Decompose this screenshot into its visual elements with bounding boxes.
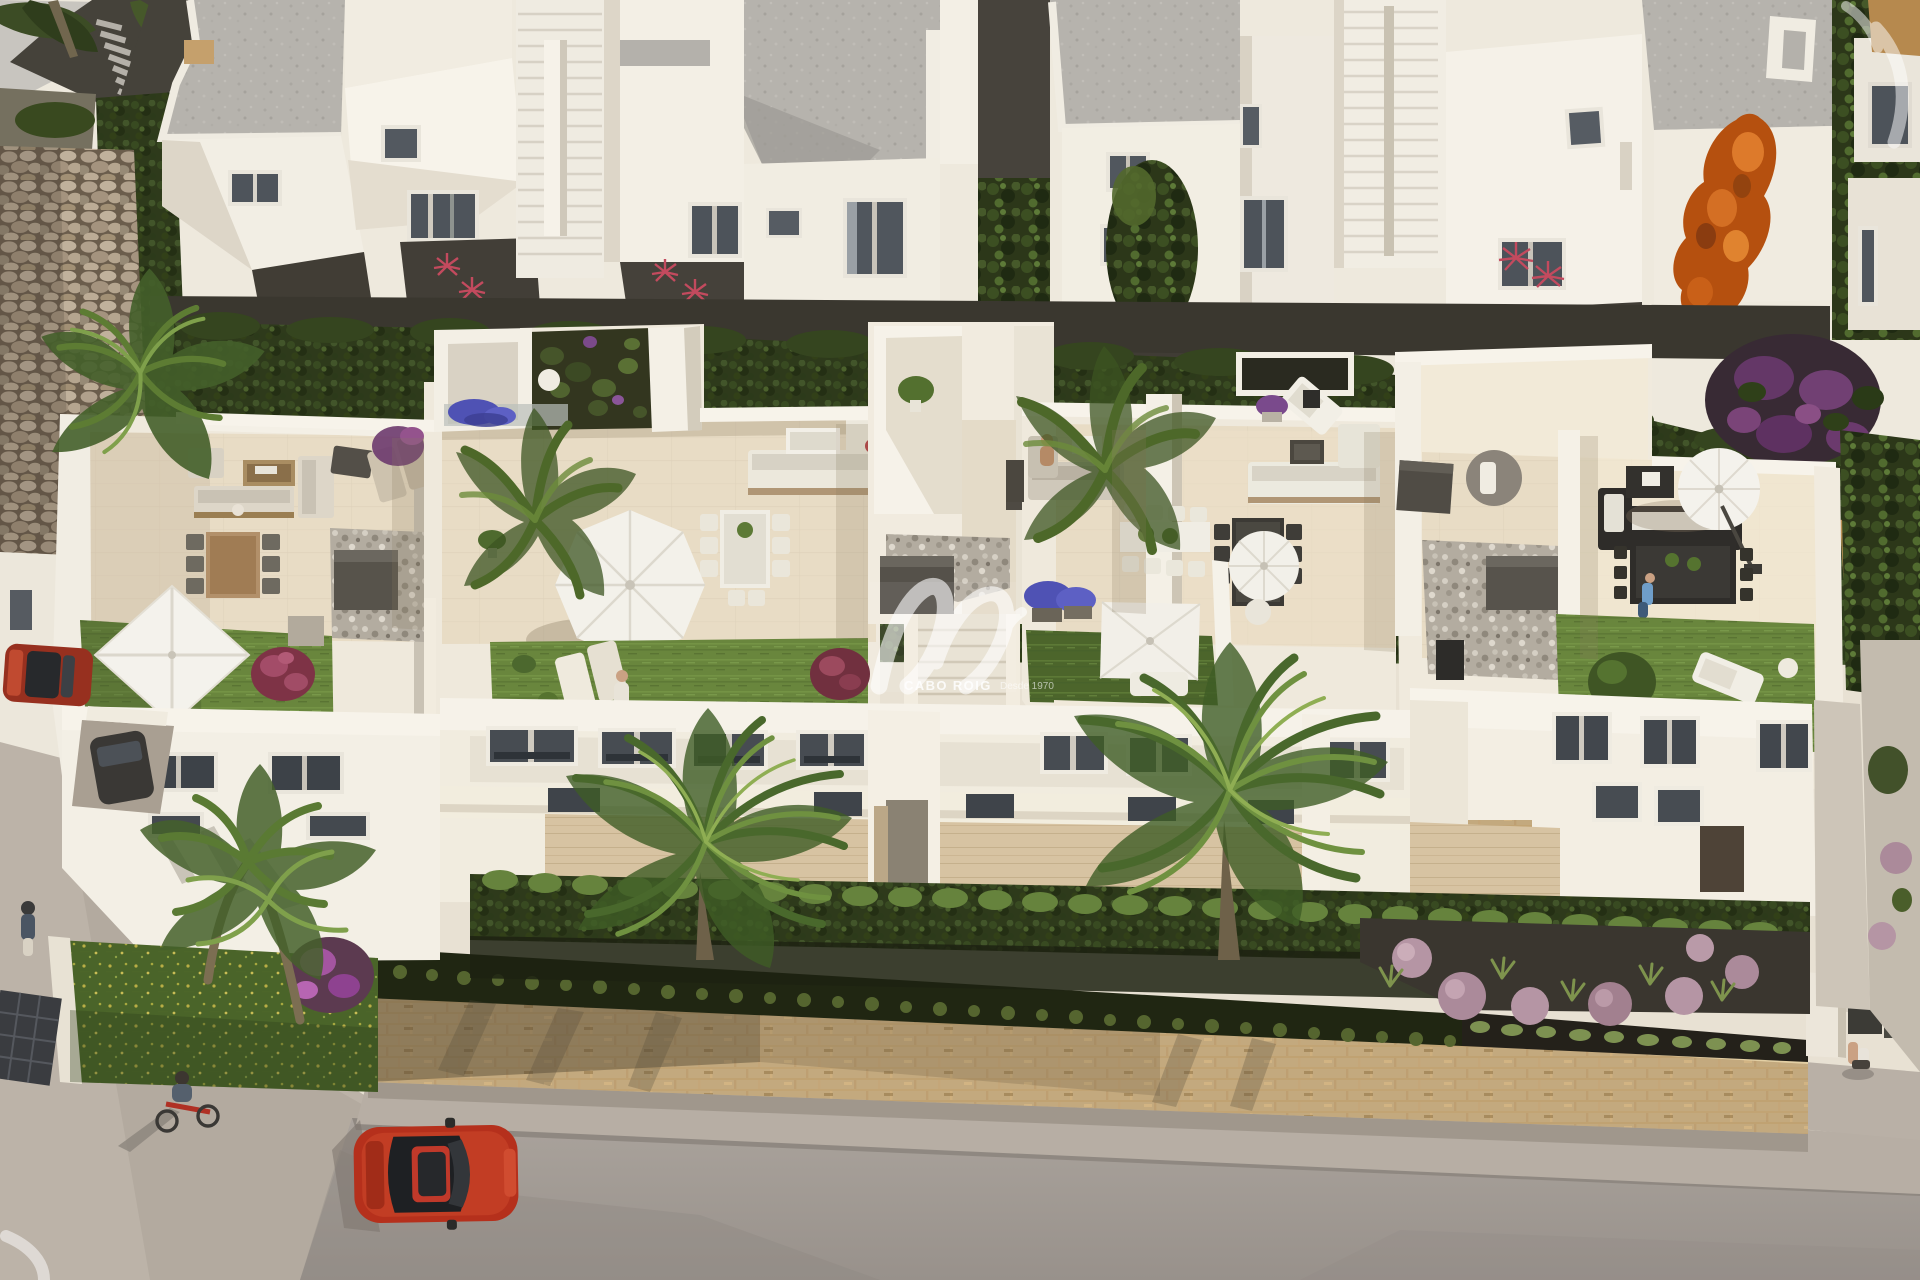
svg-text:CABO ROIG: CABO ROIG xyxy=(904,678,992,693)
svg-text:Desde 1970: Desde 1970 xyxy=(1000,681,1054,692)
